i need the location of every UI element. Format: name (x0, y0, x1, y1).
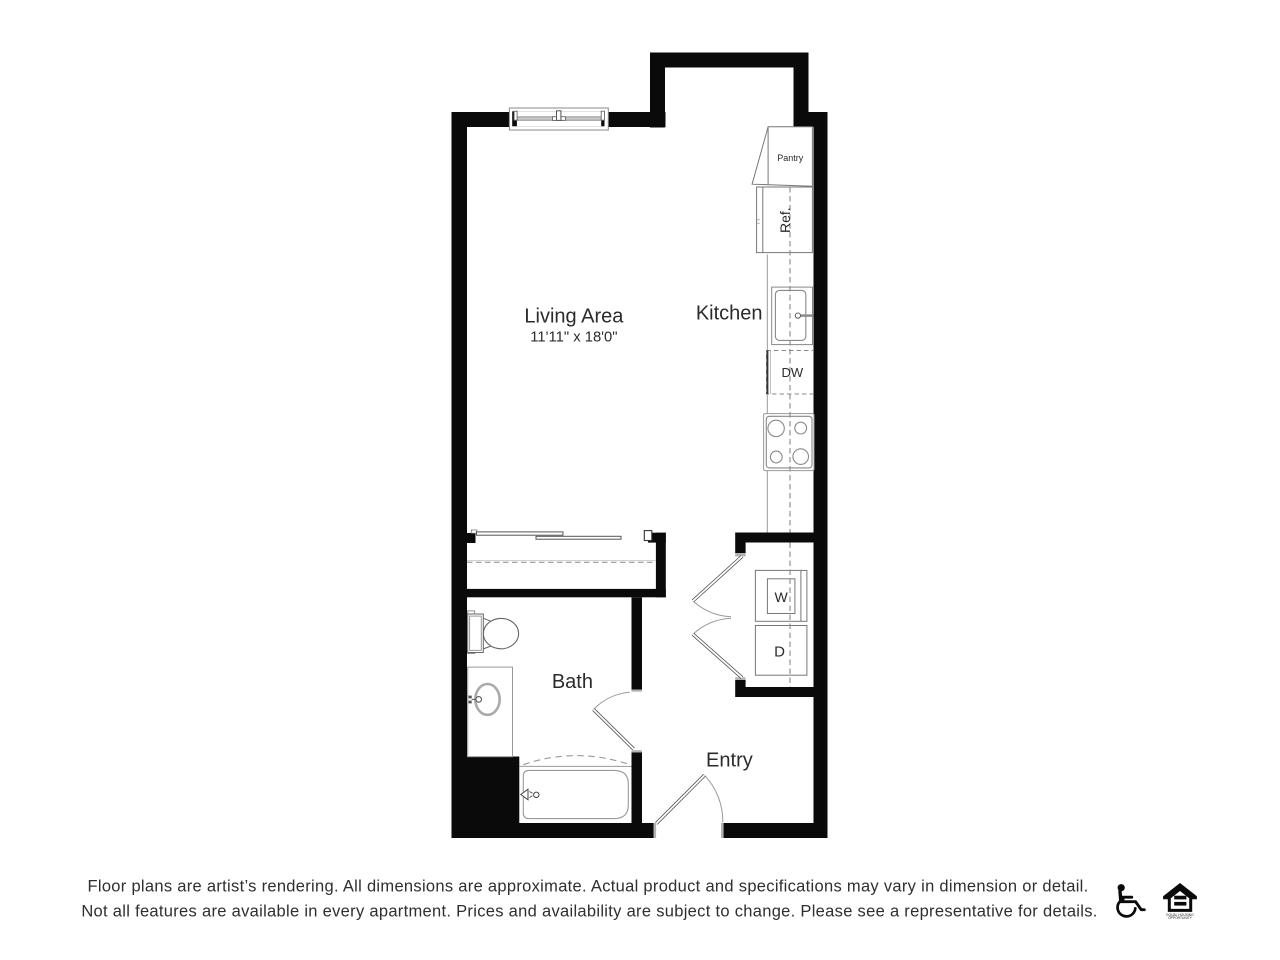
svg-text:Floor plans are artist’s rende: Floor plans are artist’s rendering. All … (87, 877, 1088, 895)
svg-text:DW: DW (781, 365, 803, 380)
svg-text:11'11" x 18'0": 11'11" x 18'0" (530, 330, 617, 346)
svg-text:Bath: Bath (552, 671, 593, 693)
svg-text:W: W (774, 589, 788, 605)
svg-text:Kitchen: Kitchen (696, 303, 763, 325)
svg-text:Pantry: Pantry (777, 153, 804, 163)
svg-text:Ref.: Ref. (777, 207, 793, 233)
svg-text:Not all features are available: Not all features are available in every … (81, 902, 1097, 920)
svg-text:Entry: Entry (706, 750, 753, 772)
svg-text:OPPORTUNITY: OPPORTUNITY (1168, 916, 1193, 920)
svg-text:D: D (774, 644, 785, 661)
svg-text:Living Area: Living Area (524, 305, 624, 327)
